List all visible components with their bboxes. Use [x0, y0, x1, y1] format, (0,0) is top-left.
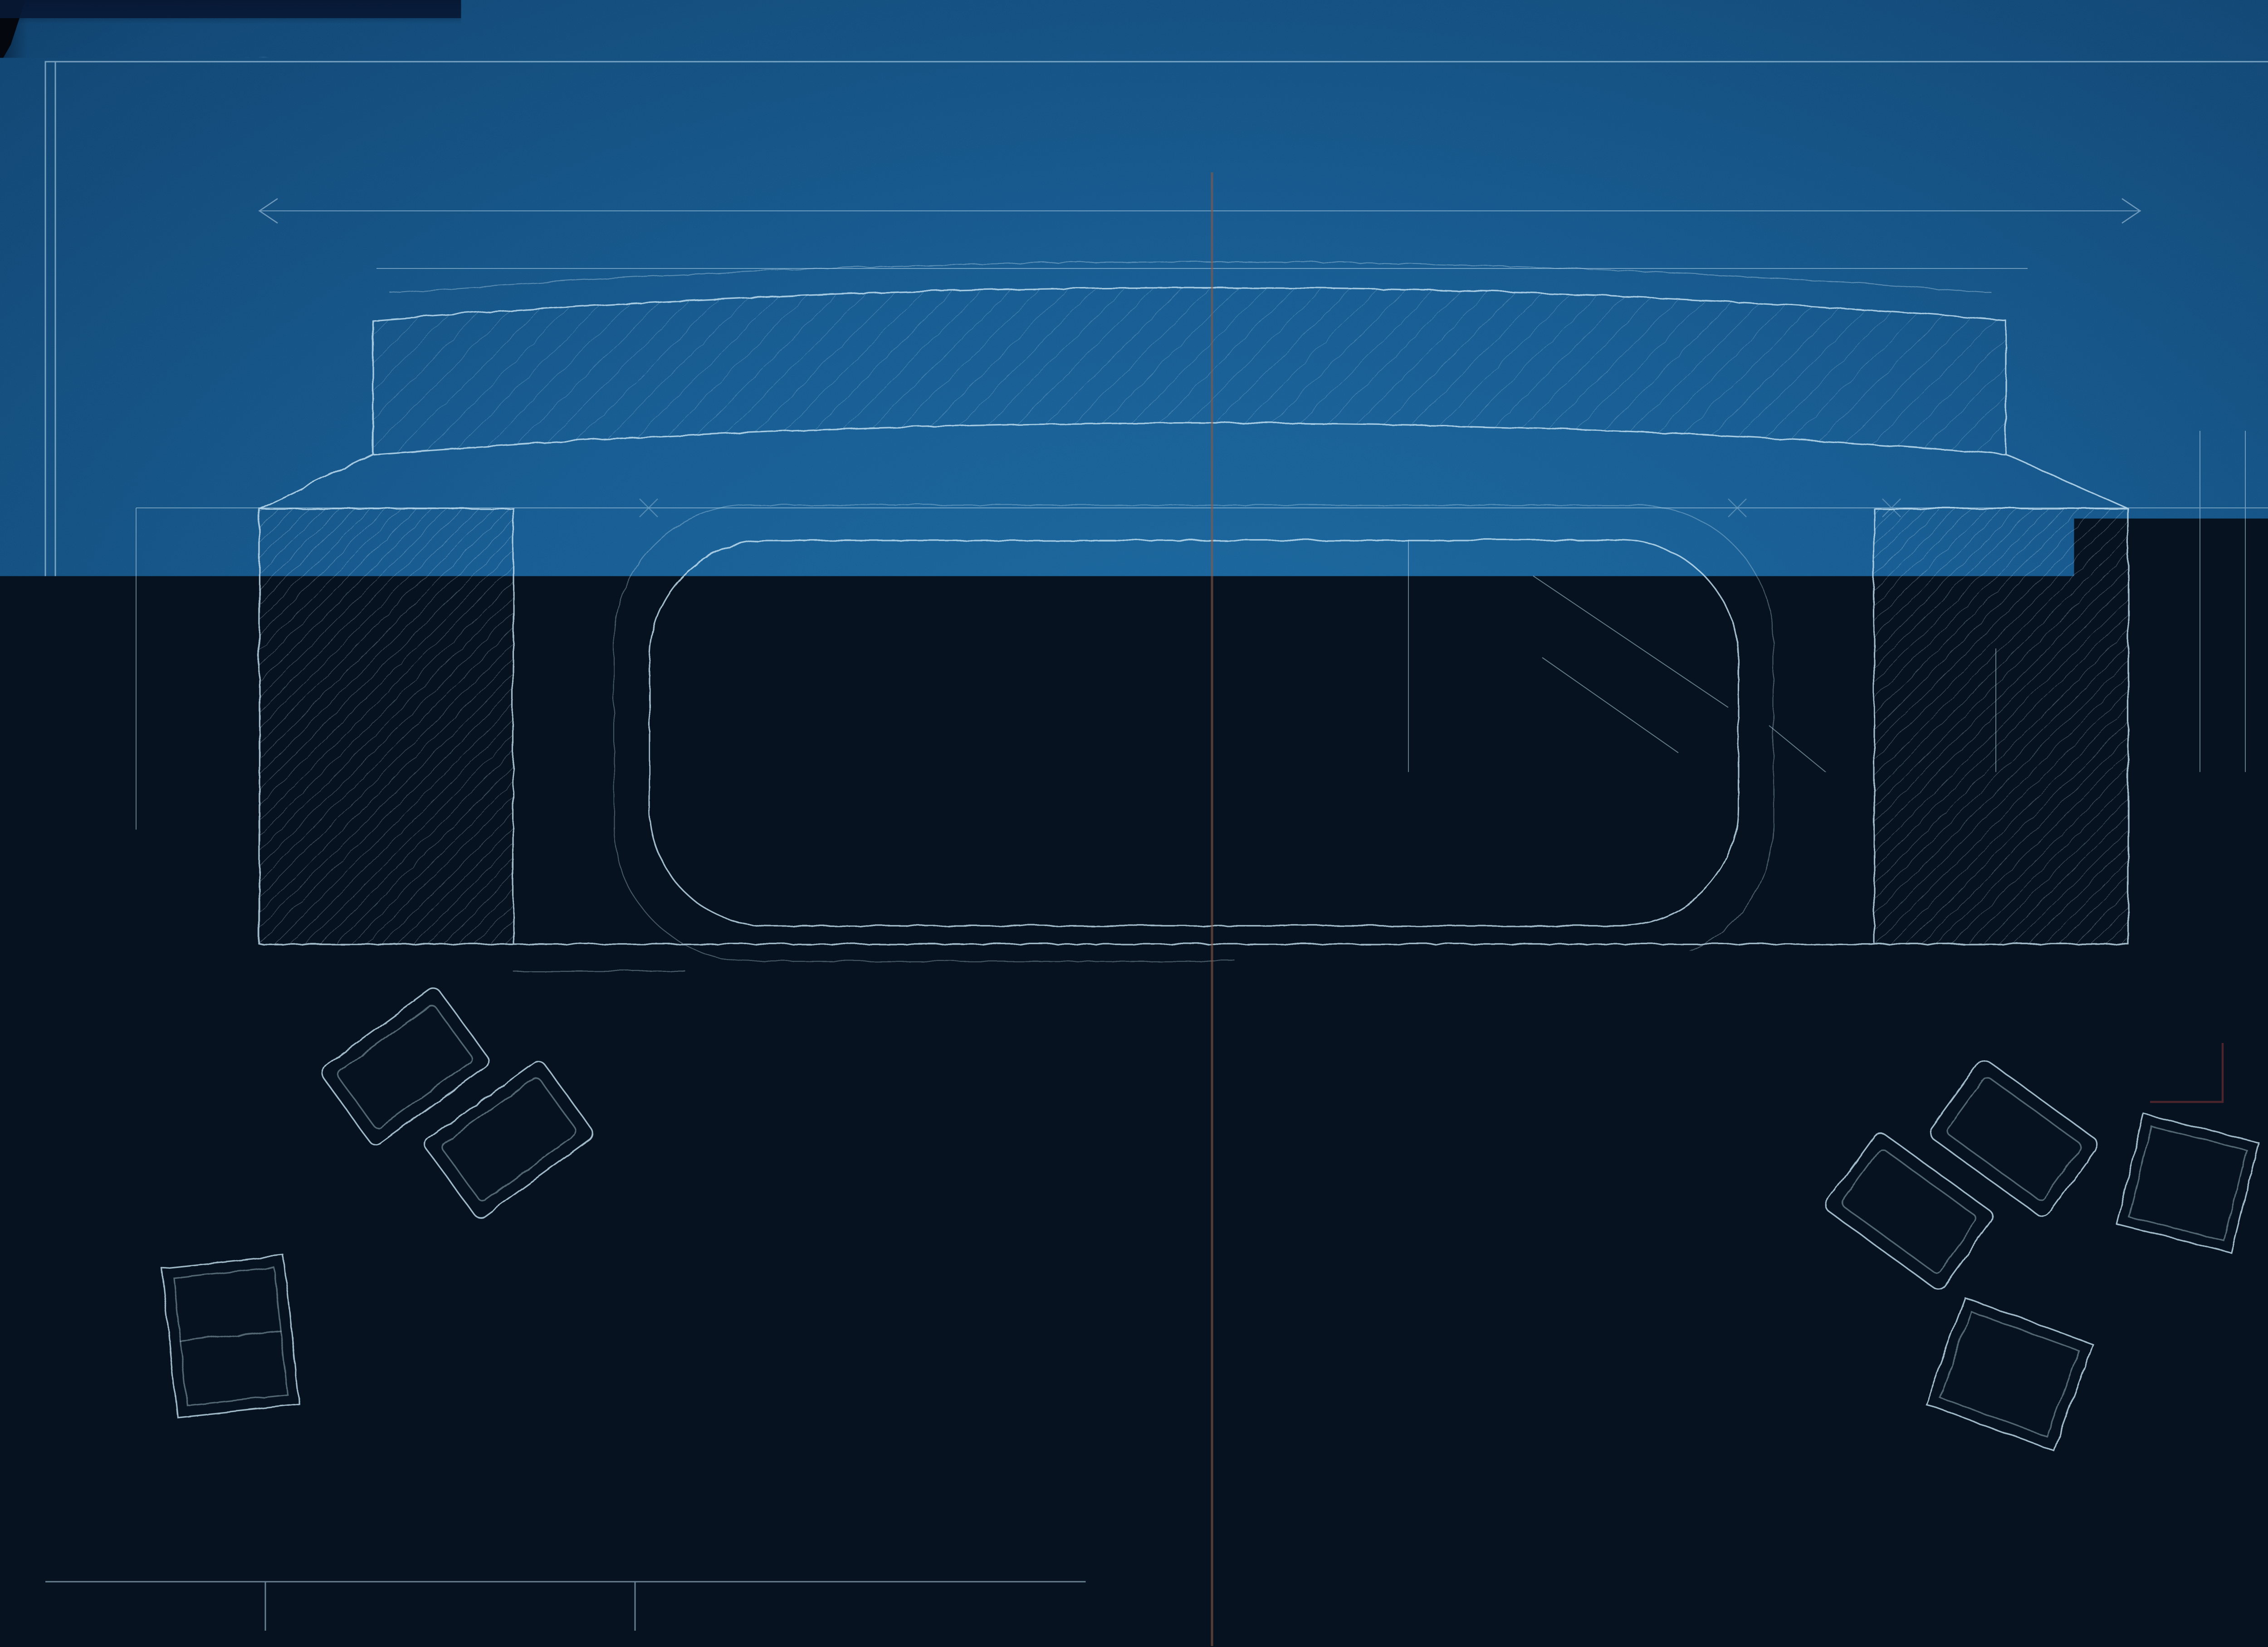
label-tubes-line1: Pro 2 špičky mikanit. trubek pro chyl. j…: [582, 1432, 1113, 1468]
label-d22: 22: [2106, 1006, 2135, 1029]
label-d25b: 25: [727, 1300, 755, 1322]
label-washer-ink: vložka 2 ks.: [2198, 1278, 2268, 1295]
label-machine-label: DG.: [289, 1578, 403, 1632]
label-remark-line1: Poznámka: délka a, a, a hlav: [1945, 1447, 2268, 1483]
label-order-number: Č. obj. 2540.: [95, 55, 281, 93]
label-d10a: 10: [1070, 1144, 1092, 1161]
label-remark-line2: vinutí, musí býti stejná.: [1945, 1492, 2223, 1525]
label-c-mod: Č. Mod.: [587, 1072, 699, 1109]
label-sheets: Plechy dle v. č. 6983: [943, 1247, 1196, 1284]
label-d30: 30 m/m: [190, 1033, 286, 1062]
annotation-layer: Č. obj. 2540.5422t 195905003406060202510…: [0, 0, 2268, 1647]
label-d500: 500: [1139, 244, 1193, 274]
label-d7633b: 76.33: [1244, 1124, 1299, 1145]
label-tubes-total: Úhrnem 168 trubek: [562, 1521, 741, 1545]
label-dim54: 54: [939, 7, 989, 44]
label-d2057: 2057ϕ: [2219, 880, 2265, 959]
label-signature: Fj.: [2204, 1597, 2236, 1625]
label-cover-ink-line2: na kryt.: [330, 785, 401, 808]
label-d5x4: 5×4: [418, 1454, 457, 1502]
label-d2100: 2100ϕ: [2177, 862, 2223, 941]
label-d255: 255: [1250, 1095, 1301, 1123]
label-d1950: 1950ϕ: [1327, 1476, 1364, 1546]
label-sl: Š.L.: [1942, 629, 2015, 674]
label-dphi40: ϕ40: [1810, 765, 1851, 804]
label-spacing-line1: vzdálenost pásem byla menší: [160, 979, 457, 1014]
label-tube-profile: Profil trubky viz č. 6983: [834, 1535, 1061, 1566]
label-d40a: 40: [699, 923, 728, 946]
label-vent-line2: otvorů viz č.p. 6981: [102, 553, 311, 589]
label-d60L: 60: [533, 485, 567, 512]
label-ribs: 35 m/m síla — 12 žeber, rozdělení viz vý…: [648, 684, 1181, 714]
label-dphi230: ϕ230: [1609, 628, 1664, 678]
label-d7633a: 76.33: [888, 1124, 943, 1145]
label-tubes-line2: Pro 14 cívek = 56 trubek pro pevné vírky…: [559, 1477, 1006, 1511]
label-title: DETAIL STATORU. 1:1: [1086, 1558, 1726, 1628]
label-machine-spec: 200 KVA, 214 obr.: [408, 1583, 669, 1625]
label-dim22: 22: [921, 540, 952, 579]
label-d590: 590: [1161, 183, 1219, 214]
label-c-mod-number: 5438: [593, 1113, 728, 1172]
label-d15b: 15: [2115, 645, 2143, 668]
label-d1b: 1: [1564, 1116, 1575, 1133]
label-drawing-number: 6982: [76, 1576, 245, 1636]
label-d1900: 1900ϕ: [93, 1246, 166, 1355]
label-d15c: 15: [2012, 790, 2042, 815]
label-stack-line2: 16 otvorů se přebrá na 16ϕ: [1346, 965, 1392, 1203]
label-stack-line1: při skládání plechů bude: [1294, 970, 1337, 1182]
label-d1697: 1697ϕ: [1428, 1481, 1466, 1551]
blueprint-sheet: Č. obj. 2540.5422t 195905003406060202510…: [0, 0, 2268, 1647]
label-d2240: 2240ϕ: [2254, 536, 2268, 621]
label-dphi32: ϕ32: [1590, 711, 1630, 749]
label-d35: 35: [1313, 907, 1344, 939]
label-d101: 101: [1710, 442, 1748, 466]
label-exciter-ink: na víko s budičem.: [2004, 1093, 2150, 1116]
label-t19: t 19: [562, 108, 663, 167]
label-d45b: 45: [1983, 722, 2017, 758]
label-d72: 72: [695, 1016, 723, 1038]
label-d1a: 1: [1053, 1116, 1064, 1133]
label-d40b: 40: [1658, 1013, 1689, 1037]
label-d1955b: 1955ϕ: [1528, 1476, 1565, 1546]
label-d207: 207: [938, 1169, 973, 1213]
label-d340: 340: [1166, 481, 1220, 510]
label-d25a: 25: [1423, 451, 1457, 487]
label-insert-line1: Mezi vinutí vlož se 2× silná: [185, 1118, 291, 1355]
label-d60R: 60: [1803, 483, 1838, 511]
label-d45a: 45: [2024, 494, 2056, 520]
label-d104: 10.4: [2003, 566, 2044, 588]
label-d7633c: 76.33: [1458, 1124, 1514, 1145]
label-d100: 100: [1403, 702, 1431, 747]
label-insert-line2: vložka Š.: [232, 1295, 278, 1377]
label-d23: 23: [1986, 414, 2015, 443]
label-d10b: 10: [1584, 1144, 1605, 1161]
label-cover-ink-line1: 5/8˝ —: [312, 753, 388, 780]
label-stack-line3: a do 4 vraženy trubky: [1419, 998, 1469, 1188]
label-main: Mod č. 5437 a 5437a: [935, 785, 1464, 853]
label-d15d: 15: [2126, 837, 2153, 858]
label-d62: 62: [2033, 718, 2063, 751]
label-d20a: 20: [1372, 341, 1406, 376]
label-d20b: 20: [1959, 491, 1989, 516]
label-d380: 380: [1248, 1268, 1298, 1295]
label-vent-line1: Počet a délka ventilačních: [103, 506, 378, 546]
